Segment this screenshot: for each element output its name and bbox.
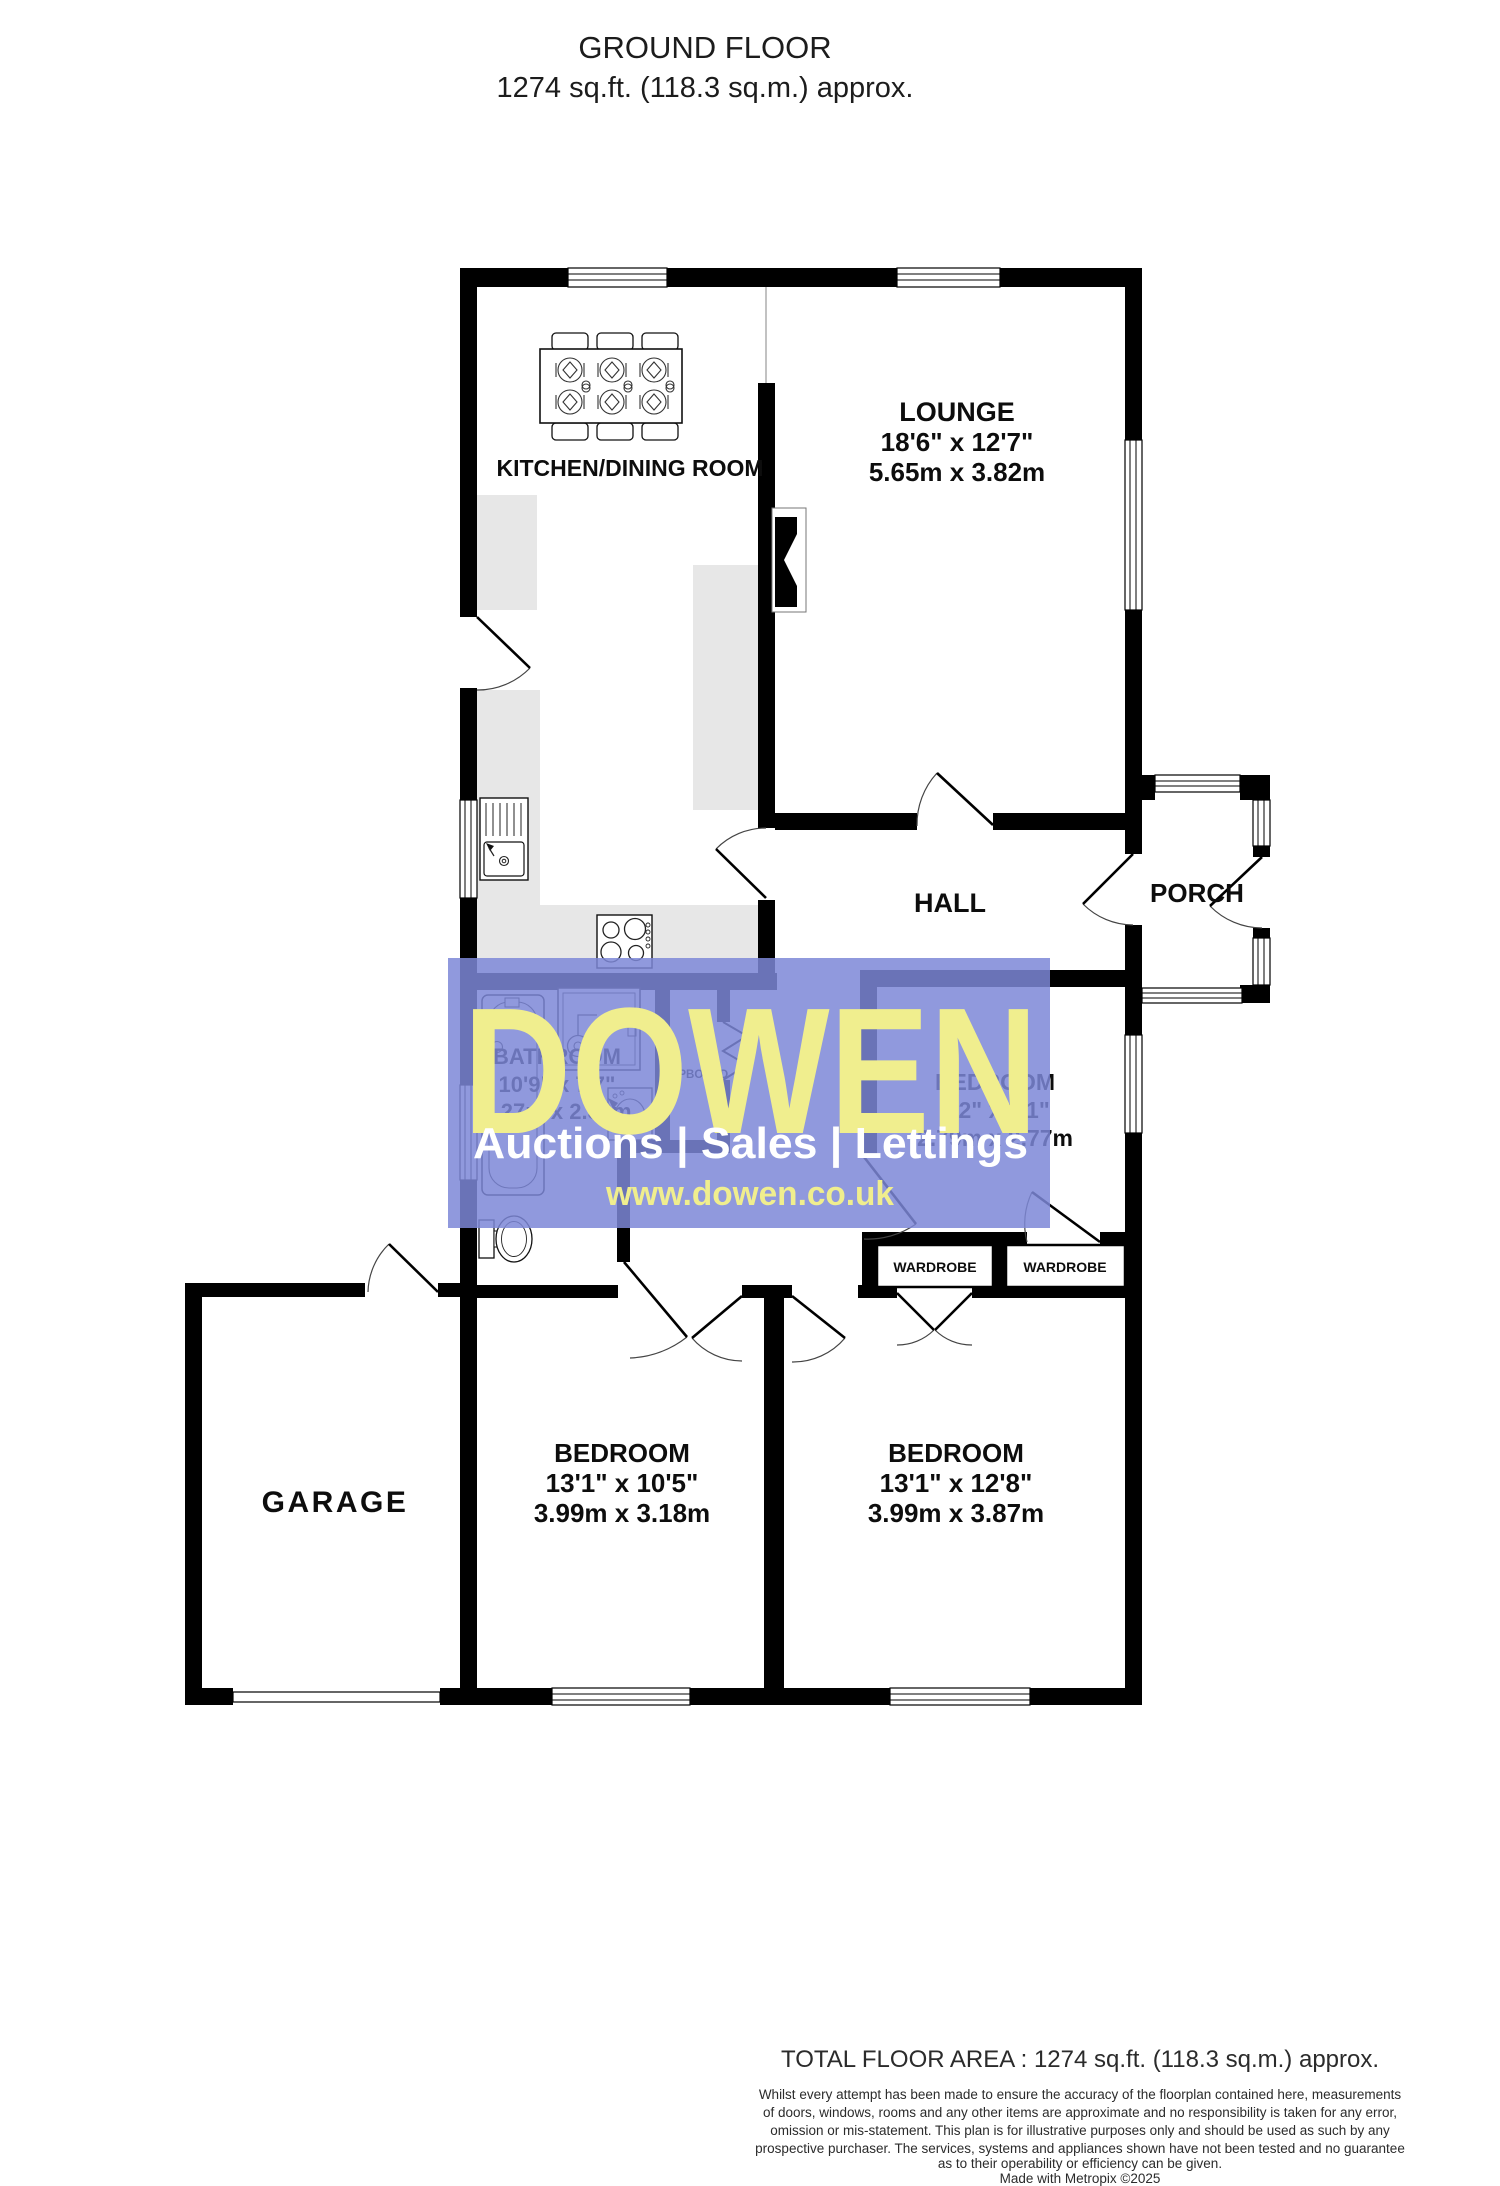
window-porch-right-lower [1253,938,1270,985]
watermark-tagline: Auctions | Sales | Lettings [473,1119,1028,1169]
window-bedroom3-bottom [890,1688,1030,1705]
kitchen-counters [477,495,765,973]
page-subtitle: 1274 sq.ft. (118.3 sq.m.) approx. [497,72,914,104]
door-hall-porch [1083,854,1133,925]
label-bedroom3-imperial: 13'1" x 12'8" [880,1468,1033,1498]
label-kitchen-dining: KITCHEN/DINING ROOM [496,455,763,481]
footer-disclaimer-line1: Whilst every attempt has been made to en… [759,2087,1402,2102]
footer-credit: Made with Metropix ©2025 [1000,2171,1161,2186]
window-bedroom2-bottom [552,1688,690,1705]
window-lounge-top [897,268,1000,287]
floorplan-image: GROUND FLOOR 1274 sq.ft. (118.3 sq.m.) a… [0,0,1500,2186]
dining-table-set [540,333,682,440]
label-bedroom3-metric: 3.99m x 3.87m [868,1498,1044,1528]
label-bedroom2-metric: 3.99m x 3.18m [534,1498,710,1528]
fireplace [772,508,806,612]
label-hall: HALL [914,888,986,918]
page-title: GROUND FLOOR [578,30,831,65]
label-lounge-metric: 5.65m x 3.82m [869,457,1045,487]
label-bedroom2: BEDROOM [554,1438,690,1468]
label-garage: GARAGE [262,1486,409,1519]
label-wardrobe-right: WARDROBE [1023,1259,1106,1275]
door-garage [368,1244,438,1292]
footer-disclaimer-line4: prospective purchaser. The services, sys… [755,2141,1405,2156]
footer-total-area: TOTAL FLOOR AREA : 1274 sq.ft. (118.3 sq… [781,2046,1379,2073]
footer-disclaimer-line2: of doors, windows, rooms and any other i… [763,2105,1397,2120]
label-porch: PORCH [1150,878,1244,908]
watermark: DOWEN Auctions | Sales | Lettings www.do… [448,958,1050,1228]
window-kitchen-top [568,268,667,287]
door-bathroom [624,1262,687,1358]
window-lounge-right [1125,440,1142,610]
label-wardrobe-left: WARDROBE [893,1259,976,1275]
window-porch-top [1155,775,1240,792]
window-kitchen-left [460,800,477,898]
garage-door [233,1692,440,1702]
door-bedroom2 [692,1296,742,1361]
watermark-url: www.dowen.co.uk [605,1175,894,1213]
window-porch-bottom [1142,988,1242,1003]
door-wardrobe-left-double [897,1293,972,1345]
window-bedroom1-right [1125,1035,1142,1133]
label-bedroom2-imperial: 13'1" x 10'5" [546,1468,699,1498]
kitchen-sink [480,798,528,880]
door-kitchen-hall [716,828,766,898]
footer-disclaimer-line3: omission or mis-statement. This plan is … [770,2123,1390,2138]
door-kitchen-side [477,617,530,690]
label-lounge: LOUNGE [899,397,1015,427]
door-bedroom3 [792,1296,845,1362]
floorplan-page: GROUND FLOOR 1274 sq.ft. (118.3 sq.m.) a… [0,0,1500,2186]
label-bedroom3: BEDROOM [888,1438,1024,1468]
footer-disclaimer-line5: as to their operability or efficiency ca… [938,2156,1222,2171]
label-lounge-imperial: 18'6" x 12'7" [881,427,1034,457]
window-porch-right-upper [1253,800,1270,846]
door-lounge-hall [917,773,993,826]
